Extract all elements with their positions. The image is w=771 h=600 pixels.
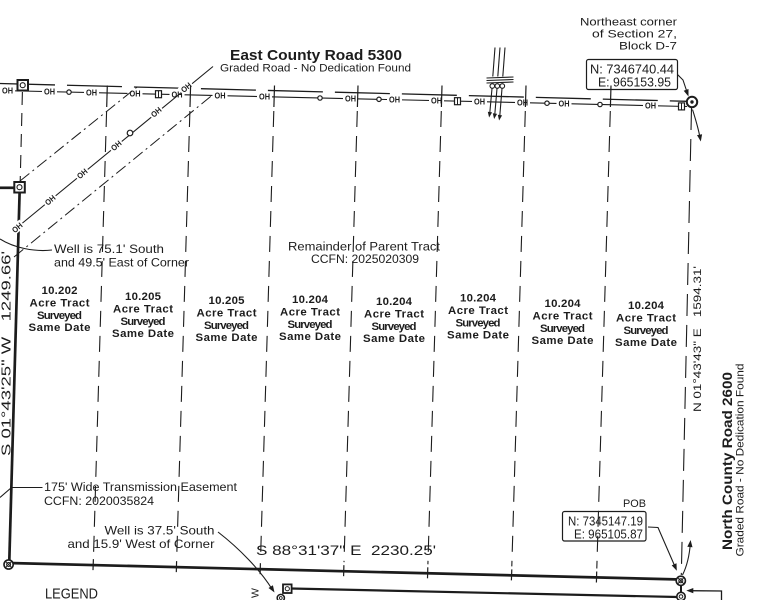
svg-text:10.204: 10.204 (460, 293, 497, 305)
svg-text:CCFN: 2020035824: CCFN: 2020035824 (44, 494, 154, 508)
svg-text:Acre Tract: Acre Tract (616, 312, 676, 324)
svg-text:Well is 75.1' South: Well is 75.1' South (54, 242, 164, 256)
svg-text:OH: OH (44, 88, 55, 97)
svg-text:POB: POB (623, 498, 646, 510)
svg-text:East County Road 5300: East County Road 5300 (230, 47, 402, 64)
svg-text:Acre Tract: Acre Tract (113, 303, 173, 315)
svg-text:N: 7346740.44: N: 7346740.44 (590, 63, 674, 77)
svg-text:OH: OH (474, 98, 485, 107)
svg-text:Acre Tract: Acre Tract (364, 308, 424, 320)
svg-text:Acre Tract: Acre Tract (30, 297, 90, 309)
svg-text:Same Date: Same Date (279, 331, 341, 343)
svg-text:LEGEND: LEGEND (45, 587, 98, 600)
svg-text:Acre Tract: Acre Tract (533, 310, 593, 322)
svg-text:Graded Road - No Dedication Fo: Graded Road - No Dedication Found (735, 364, 747, 557)
svg-text:Acre Tract: Acre Tract (197, 307, 257, 319)
svg-text:10.204: 10.204 (376, 296, 413, 308)
svg-text:W: W (250, 588, 262, 598)
svg-text:Surveyed: Surveyed (624, 325, 669, 337)
svg-text:E: 965105.87: E: 965105.87 (574, 528, 643, 542)
svg-text:Same Date: Same Date (196, 332, 258, 344)
svg-text:Surveyed: Surveyed (288, 319, 333, 331)
svg-text:Same Date: Same Date (532, 335, 594, 347)
svg-text:Same Date: Same Date (363, 333, 425, 345)
svg-text:of Section 27,: of Section 27, (592, 29, 677, 41)
svg-text:Same Date: Same Date (615, 337, 677, 349)
svg-text:Graded Road - No Dedication Fo: Graded Road - No Dedication Found (220, 63, 411, 75)
svg-text:10.204: 10.204 (292, 294, 329, 306)
svg-text:Same Date: Same Date (112, 328, 174, 340)
svg-text:OH: OH (2, 87, 13, 96)
svg-text:Surveyed: Surveyed (456, 317, 501, 329)
svg-text:and 49.5' East of Corner: and 49.5' East of Corner (54, 256, 189, 270)
svg-text:Acre Tract: Acre Tract (280, 306, 340, 318)
svg-text:Surveyed: Surveyed (372, 321, 417, 333)
svg-text:OH: OH (517, 99, 528, 108)
svg-text:North County Road 2600: North County Road 2600 (719, 372, 735, 550)
svg-text:OH: OH (645, 102, 656, 111)
svg-text:10.205: 10.205 (209, 295, 246, 307)
svg-text:10.205: 10.205 (125, 291, 162, 303)
svg-text:OH: OH (559, 100, 570, 109)
svg-text:175' Wide Transmission Easemen: 175' Wide Transmission Easement (44, 480, 238, 494)
svg-text:E: 965153.95: E: 965153.95 (598, 76, 671, 90)
svg-text:OH: OH (215, 92, 226, 101)
svg-text:Surveyed: Surveyed (204, 320, 249, 332)
svg-text:10.202: 10.202 (42, 285, 78, 297)
svg-text:OH: OH (259, 93, 270, 102)
svg-text:OH: OH (345, 95, 356, 104)
svg-text:N 01°43'43" E 1594.31': N 01°43'43" E 1594.31' (692, 266, 704, 412)
svg-text:Block D-7: Block D-7 (619, 41, 677, 53)
svg-text:N: 7345147.19: N: 7345147.19 (568, 515, 643, 529)
svg-text:OH: OH (389, 96, 400, 105)
svg-text:10.204: 10.204 (545, 298, 582, 310)
svg-text:Northeast corner: Northeast corner (580, 17, 677, 29)
svg-text:Well is 37.5' South: Well is 37.5' South (105, 524, 215, 538)
svg-text:CCFN: 2025020309: CCFN: 2025020309 (311, 252, 419, 266)
svg-text:and 15.9' West of Corner: and 15.9' West of Corner (68, 537, 215, 551)
svg-text:Surveyed: Surveyed (540, 323, 585, 335)
svg-text:Same Date: Same Date (447, 330, 509, 342)
svg-text:OH: OH (86, 89, 97, 98)
svg-text:OH: OH (431, 97, 442, 106)
svg-text:10.204: 10.204 (628, 300, 665, 312)
svg-text:Same Date: Same Date (29, 322, 91, 334)
svg-text:S 88°31'37" E 2230.25': S 88°31'37" E 2230.25' (256, 542, 436, 558)
svg-text:OH: OH (130, 90, 141, 99)
svg-text:S 01°43'25" W 1249.66': S 01°43'25" W 1249.66' (0, 251, 14, 456)
svg-text:Surveyed: Surveyed (121, 316, 166, 328)
svg-text:Acre Tract: Acre Tract (448, 305, 508, 317)
svg-text:Surveyed: Surveyed (37, 310, 82, 322)
